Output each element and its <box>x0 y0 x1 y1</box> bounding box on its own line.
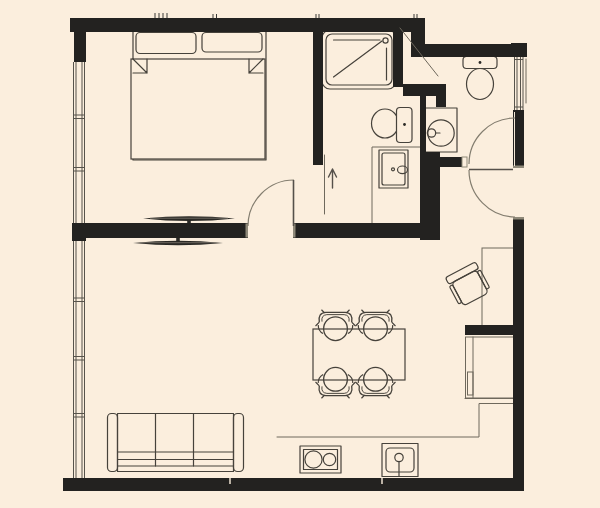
toilet-bowl-icon <box>372 109 399 138</box>
entry-door <box>469 170 515 218</box>
kitchen-counter-edge <box>277 399 514 438</box>
burner-small-icon <box>323 453 335 465</box>
wall-between-baths <box>420 86 426 152</box>
sink-basin <box>386 448 414 472</box>
wall-top <box>70 18 425 32</box>
wall-bath2-bottom <box>426 157 462 167</box>
shower-head-icon <box>383 38 388 43</box>
wall-niche-stub <box>436 84 446 107</box>
duvet <box>131 59 265 159</box>
direction-arrow <box>329 169 337 188</box>
tv-screen-icon <box>143 216 235 221</box>
kitchen-sink <box>382 444 418 477</box>
faucet-icon <box>395 453 403 461</box>
toilet-main <box>372 108 413 143</box>
cooktop <box>300 446 341 473</box>
pillow-left-icon <box>136 33 196 54</box>
washer-inner <box>382 153 405 185</box>
vanity-outline <box>425 108 457 152</box>
toilet-button <box>403 123 406 126</box>
bedroom-door <box>248 180 294 226</box>
chair-arm-right <box>477 270 489 289</box>
work-nook <box>445 248 514 326</box>
washing-machine <box>379 150 408 188</box>
floor-plan-canvas <box>0 0 600 508</box>
wall-divider-left <box>72 223 248 238</box>
cabinet-handle-panel <box>468 372 474 395</box>
dining-set <box>313 310 405 398</box>
second-bathroom <box>425 57 497 153</box>
door-swing-arc <box>469 170 515 217</box>
double-bed <box>131 30 266 160</box>
wall-right-corner <box>511 43 527 57</box>
wall-divider-right <box>293 223 440 238</box>
wall-bath2-top <box>411 44 527 57</box>
sofa-armrest-right <box>234 414 244 472</box>
bathroom-window-right <box>515 57 527 110</box>
washbasin <box>425 108 457 152</box>
toilet-second <box>463 57 497 100</box>
arrow-up-icon <box>329 169 337 188</box>
sofa-body <box>118 414 234 472</box>
desk-chair <box>445 262 492 308</box>
dimension-ticks <box>155 13 417 18</box>
desk <box>482 248 514 326</box>
burner-large-icon <box>305 451 322 468</box>
left-window-lower <box>74 241 85 478</box>
chair-back <box>445 262 479 285</box>
washer-dot <box>392 168 395 171</box>
toilet-button <box>479 61 482 64</box>
left-window-upper <box>74 62 85 223</box>
pillow-right-icon <box>202 33 262 53</box>
main-bathroom <box>322 30 420 223</box>
washer-knob <box>398 166 408 174</box>
wall-bedroom-right <box>313 18 323 165</box>
sofa-back-lines <box>118 452 234 466</box>
sofa-cushion-dividers <box>156 414 194 467</box>
bathroom-door <box>469 118 515 164</box>
wall-kitchen-stub <box>465 325 514 335</box>
floor-plan-drawing <box>0 0 600 508</box>
basin-icon <box>428 120 454 146</box>
dining-table <box>313 329 405 380</box>
jamb-cap-block <box>462 157 467 167</box>
washer-outline <box>379 150 408 188</box>
wall-left-top-block <box>74 31 86 62</box>
toilet-bowl-icon <box>467 69 494 100</box>
sofa <box>108 414 244 472</box>
wall-left-mid-block <box>72 236 86 241</box>
shower-tray <box>322 30 396 89</box>
shower-diagonal <box>334 41 383 77</box>
chair-arm-left <box>449 285 461 304</box>
wall-bottom <box>63 478 524 491</box>
wall-right-b <box>513 217 524 480</box>
basin-faucet-icon <box>427 129 435 137</box>
shower <box>322 30 396 89</box>
door-swing-arc <box>248 180 294 226</box>
sofa-armrest-left <box>108 414 118 472</box>
door-swing-arc <box>469 118 515 164</box>
